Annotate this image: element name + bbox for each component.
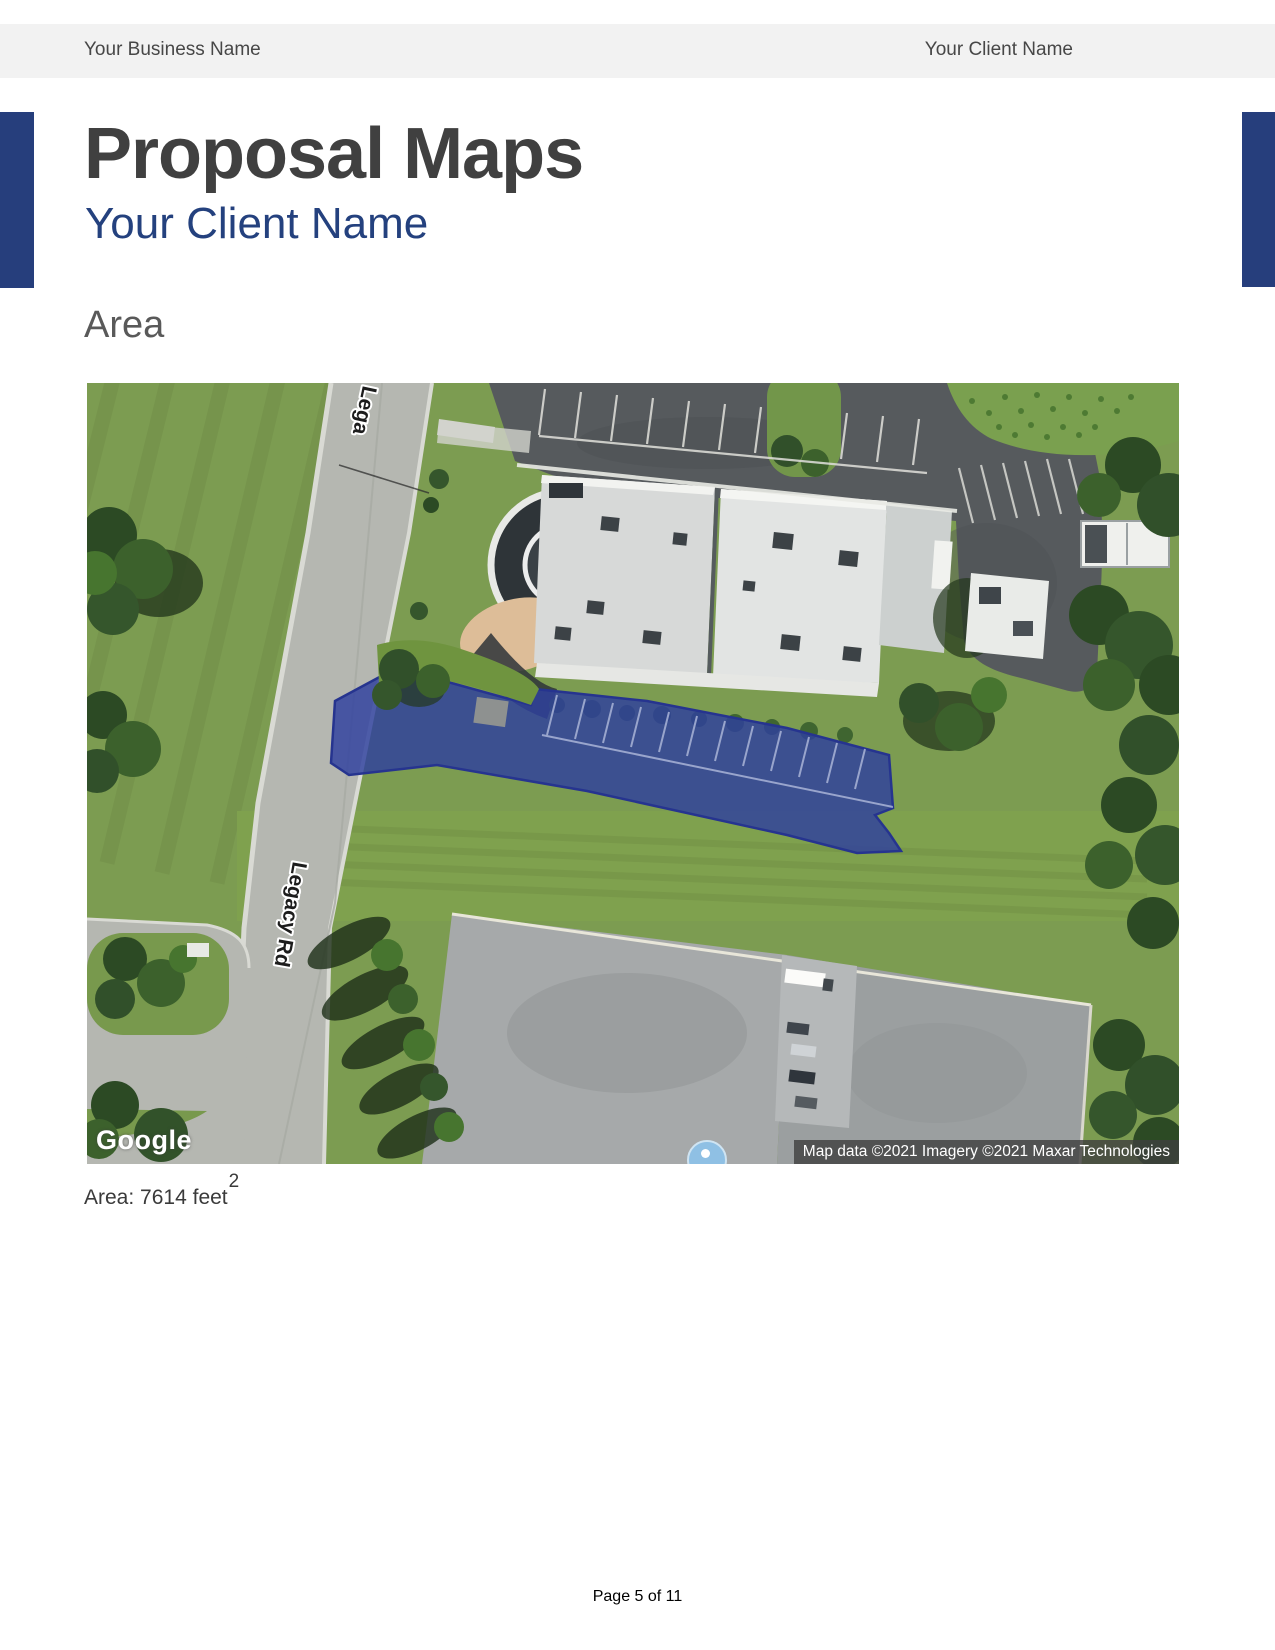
proposal-page: Your Business Name Your Client Name Prop…	[0, 0, 1275, 1650]
page-subtitle: Your Client Name	[85, 200, 428, 248]
page-header-bar: Your Business Name Your Client Name	[0, 24, 1275, 78]
google-watermark: Google	[96, 1125, 192, 1156]
accent-bar-left	[0, 112, 34, 288]
page-title: Proposal Maps	[84, 118, 583, 190]
section-heading-area: Area	[84, 304, 164, 347]
map-attribution: Map data ©2021 Imagery ©2021 Maxar Techn…	[794, 1140, 1179, 1164]
satellite-map: Lega Legacy Rd Google Map data ©2021 Ima…	[87, 383, 1179, 1164]
accent-bar-right	[1242, 112, 1275, 287]
business-name: Your Business Name	[84, 39, 261, 61]
client-name-header: Your Client Name	[925, 39, 1073, 61]
page-number: Page 5 of 11	[0, 1588, 1275, 1606]
area-value: 7614	[140, 1186, 187, 1209]
area-unit: feet	[193, 1186, 228, 1209]
area-exponent: 2	[229, 1171, 240, 1192]
area-label: Area:	[84, 1186, 134, 1209]
satellite-map-image: Lega Legacy Rd	[87, 383, 1179, 1164]
area-measurement: Area: 7614 feet2	[84, 1180, 238, 1210]
